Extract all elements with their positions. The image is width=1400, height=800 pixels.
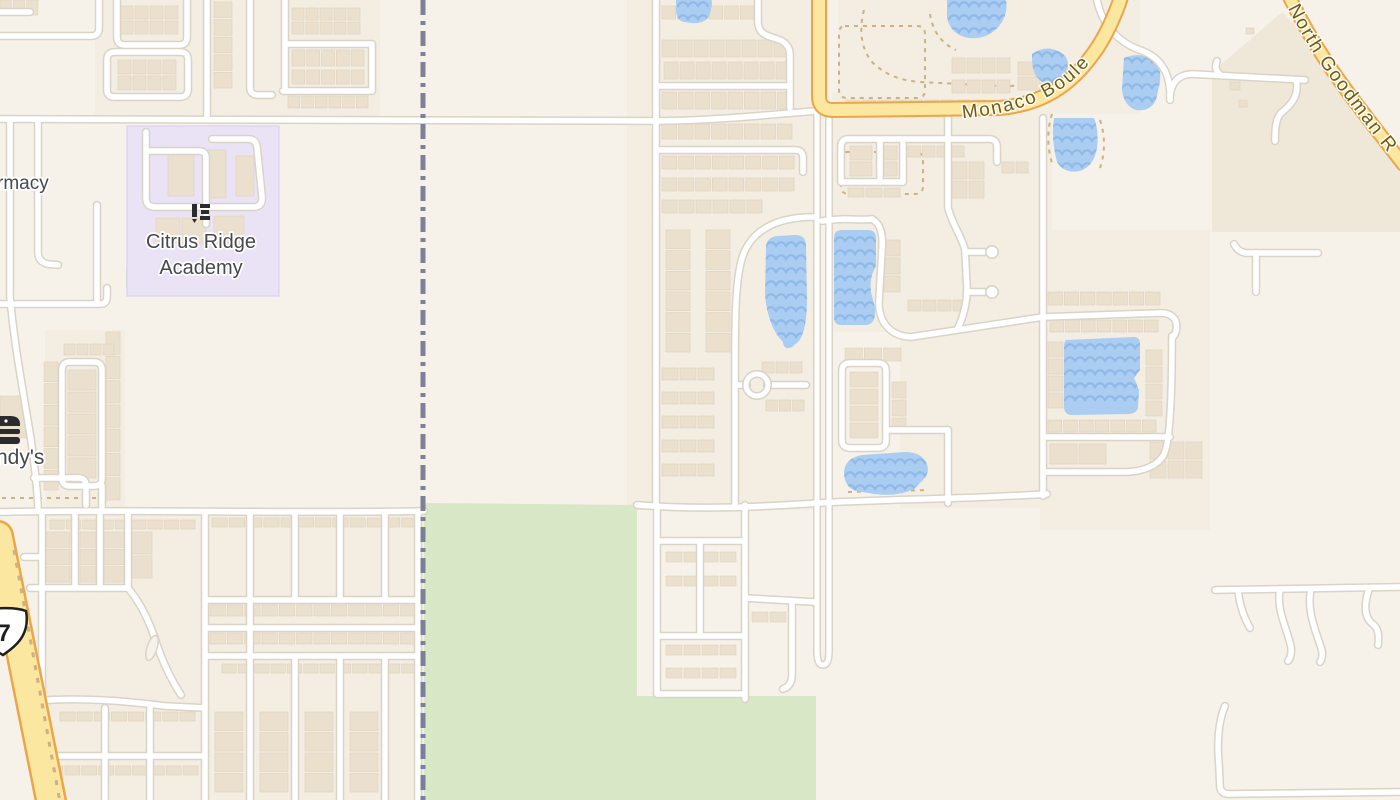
building-footprint [181,520,195,529]
building-footprint [166,766,181,775]
building-footprint [401,633,416,644]
building-footprint [729,156,744,169]
building-footprint [666,333,690,352]
building-footprint [68,370,96,390]
building-footprint [1048,292,1062,305]
building-footprint [132,520,146,529]
building-footprint [227,605,242,616]
building-footprint [64,344,75,355]
building-footprint [662,368,678,380]
building-footprint [666,230,690,249]
building-footprint [850,162,872,176]
building-footprint [383,605,398,616]
building-footprint [969,181,984,198]
building-footprint [746,156,761,169]
building-footprint [698,416,714,428]
building-footprint [367,518,382,527]
pharmacy-label-partial: rmacy [0,173,49,194]
building-footprint [120,21,133,34]
building-footprint [383,633,398,644]
building-footprint [215,753,243,772]
building-footprint [320,8,332,20]
building-footprint [44,384,58,404]
building-footprint [1168,461,1184,478]
building-footprint [215,712,243,731]
building-footprint [80,532,96,547]
building-footprint [967,80,980,93]
building-footprint [77,344,88,355]
building-footprint [884,162,897,176]
building-footprint [104,549,124,564]
building-footprint [1095,420,1109,432]
building-footprint [730,200,745,213]
building-footprint [1079,444,1106,464]
building-footprint [684,645,700,655]
building-footprint [351,50,364,66]
building-footprint [720,576,736,586]
building-footprint [168,152,194,196]
building-footprint [133,60,146,74]
building-footprint [1048,420,1062,432]
building-footprint [952,58,965,73]
building-footprint [892,382,906,398]
building-footprint [662,392,678,404]
building-footprint [349,633,364,644]
building-footprint [77,712,92,721]
building-footprint [210,605,225,616]
building-footprint [728,92,743,109]
building-footprint [322,70,335,84]
building-footprint [666,645,682,655]
building-footprint [46,549,70,564]
building-footprint [666,313,690,332]
building-footprint [698,464,714,476]
building-footprint [44,427,58,447]
building-footprint [132,766,147,775]
building-footprint [679,156,694,169]
building-footprint [133,76,146,90]
building-footprint [952,80,965,93]
building-footprint [712,124,727,139]
building-footprint [779,156,794,169]
building-footprint [111,712,126,721]
building-footprint [292,70,305,84]
building-footprint [80,567,96,582]
building-footprint [366,633,381,644]
building-footprint [350,712,378,731]
building-footprint [1113,320,1127,332]
building-footprint [698,368,714,380]
building-footprint [349,605,364,616]
building-footprint [298,518,313,527]
building-footprint [44,405,58,425]
building-footprint [712,178,727,191]
building-footprint [706,230,730,249]
building-footprint [726,40,740,57]
building-footprint [165,21,178,34]
building-footprint [662,92,677,109]
building-footprint [938,300,951,311]
building-footprint [118,60,131,74]
building-footprint [118,76,131,90]
building-footprint [680,440,696,452]
building-footprint [314,633,329,644]
building-footprint [106,356,120,378]
building-footprint [103,344,114,355]
building-footprint [1048,342,1063,357]
building-footprint [1146,401,1162,416]
building-footprint [292,50,305,66]
building-footprint [850,406,878,421]
building-footprint [1239,100,1247,107]
building-footprint [106,478,120,500]
building-footprint [164,520,178,529]
building-footprint [320,664,334,673]
building-footprint [297,605,312,616]
building-footprint [292,22,304,34]
building-footprint [304,664,318,673]
building-footprint [728,62,742,79]
building-footprint [997,58,1010,73]
building-footprint [884,276,900,292]
building-footprint [214,20,232,36]
building-footprint [695,124,710,139]
building-footprint [1079,420,1093,432]
building-footprint [752,612,768,622]
building-footprint [150,21,163,34]
building-footprint [65,766,80,775]
building-footprint [1230,82,1240,90]
building-footprint [776,362,788,373]
building-footprint [315,96,327,108]
building-footprint [952,162,967,179]
building-footprint [214,2,232,18]
building-footprint [320,22,332,34]
building-footprint [662,464,678,476]
building-footprint [1002,162,1014,173]
building-footprint [1246,28,1254,34]
building-footprint [666,668,682,678]
building-footprint [850,423,878,438]
building-footprint [684,668,700,678]
building-footprint [271,664,285,673]
building-footprint [982,58,995,73]
building-footprint [763,178,778,191]
building-footprint [793,400,804,411]
building-footprint [908,300,921,311]
building-footprint [720,668,736,678]
building-footprint [712,156,727,169]
building-footprint [1186,442,1202,459]
building-footprint [770,612,786,622]
building-footprint [116,766,131,775]
building-footprint [165,6,178,19]
building-footprint [334,22,346,34]
building-footprint [104,567,124,582]
building-footprint [694,40,708,57]
building-footprint [150,6,163,19]
building-footprint [222,664,236,673]
building-footprint [1064,420,1078,432]
building-footprint [1129,292,1143,305]
building-footprint [350,774,378,793]
building-footprint [779,400,790,411]
building-footprint [343,96,355,108]
building-footprint [662,200,677,213]
building-footprint [260,733,288,752]
building-footprint [848,188,864,197]
building-footprint [120,6,133,19]
building-footprint [331,633,346,644]
building-footprint [952,146,965,157]
building-footprint [46,532,70,547]
building-footprint [763,156,778,169]
building-footprint [1142,420,1156,432]
building-footprint [1081,292,1095,305]
building-footprint [1066,320,1080,332]
building-footprint [1111,420,1125,432]
building-footprint [260,712,288,731]
building-footprint [305,753,333,772]
building-footprint [712,92,727,109]
fast-food-icon [0,416,20,444]
building-footprint [262,633,277,644]
building-footprint [761,124,776,139]
building-footprint [712,62,726,79]
building-footprint [698,392,714,404]
building-footprint [1146,292,1160,305]
building-footprint [728,124,743,139]
building-footprint [790,362,802,373]
building-footprint [706,313,730,332]
building-footprint [746,178,761,191]
building-footprint [1186,461,1202,478]
building-footprint [1048,393,1063,408]
building-footprint [662,156,677,169]
building-footprint [1097,292,1111,305]
building-footprint [766,400,777,411]
building-footprint [46,567,70,582]
building-footprint [334,8,346,20]
building-footprint [322,50,335,66]
building-footprint [366,605,381,616]
building-footprint [706,292,730,311]
building-footprint [696,178,711,191]
building-footprint [662,440,678,452]
street-fill [1215,587,1400,590]
building-footprint [229,518,244,527]
building-footprint [696,200,711,213]
building-footprint [702,552,718,562]
building-footprint [106,381,120,403]
building-footprint [666,292,690,311]
building-footprint [148,520,162,529]
building-footprint [104,532,124,547]
building-footprint [350,733,378,752]
building-footprint [106,405,120,427]
building-footprint [163,60,176,74]
building-footprint [336,50,349,66]
building-footprint [742,40,756,57]
building-footprint [884,258,900,274]
building-footprint [262,605,277,616]
building-footprint [1050,444,1077,464]
street-fill [0,511,424,512]
building-footprint [850,146,872,160]
building-footprint [1146,367,1162,382]
building-footprint [50,520,64,529]
building-footprint [666,552,682,562]
building-footprint [316,518,331,527]
building-footprint [279,633,294,644]
building-footprint [982,80,995,93]
building-footprint [1129,320,1143,332]
building-footprint [329,96,341,108]
building-footprint [892,400,906,416]
building-footprint [148,60,161,74]
building-footprint [923,300,936,311]
building-footprint [702,576,718,586]
building-footprint [706,271,730,290]
building-footprint [696,156,711,169]
building-footprint [297,633,312,644]
building-footprint [745,92,760,109]
building-footprint [135,21,148,34]
building-footprint [183,766,198,775]
building-footprint [680,464,696,476]
building-footprint [678,40,692,57]
building-footprint [680,416,696,428]
building-footprint [1048,359,1063,374]
building-footprint [997,80,1010,93]
building-footprint [666,271,690,290]
building-footprint [44,449,58,469]
building-footprint [106,453,120,475]
building-footprint [745,124,760,139]
building-footprint [662,40,676,57]
building-footprint [923,146,936,157]
building-footprint [747,200,762,213]
building-footprint [236,156,254,196]
building-footprint [1146,384,1162,399]
building-footprint [288,96,300,108]
building-footprint [698,440,714,452]
building-footprint [90,344,101,355]
building-footprint [302,96,314,108]
building-footprint [215,774,243,793]
building-footprint [680,368,696,380]
building-footprint [83,520,97,529]
building-footprint [952,181,967,198]
building-footprint [106,429,120,451]
building-footprint [850,389,878,404]
building-footprint [348,8,360,20]
building-footprint [778,124,793,139]
building-footprint [1016,162,1028,173]
building-footprint [967,58,980,73]
building-footprint [664,62,678,79]
building-footprint [351,70,364,84]
building-footprint [662,6,676,19]
building-footprint [212,518,227,527]
building-footprint [1081,320,1095,332]
building-footprint [679,124,694,139]
building-footprint [135,6,148,19]
building-footprint [702,668,718,678]
building-footprint [68,436,96,456]
building-footprint [305,712,333,731]
building-footprint [210,633,225,644]
building-footprint [729,178,744,191]
building-footprint [227,633,242,644]
building-footprint [680,392,696,404]
building-footprint [82,766,97,775]
building-footprint [307,70,320,84]
building-footprint [884,348,901,361]
building-footprint [306,22,318,34]
building-footprint [1050,320,1064,332]
route-number: 7 [0,620,11,647]
building-footprint [80,549,96,564]
building-footprint [148,76,161,90]
building-footprint [1146,350,1162,365]
building-footprint [725,6,739,19]
building-footprint [214,55,232,71]
building-footprint [884,146,897,160]
building-footprint [180,712,195,721]
building-footprint [662,178,677,191]
building-footprint [260,774,288,793]
building-footprint [1144,320,1158,332]
building-footprint [758,40,772,57]
building-footprint [348,22,360,34]
building-footprint [350,518,365,527]
building-footprint [306,8,318,20]
building-footprint [866,188,882,197]
building-footprint [720,645,736,655]
building-footprint [695,92,710,109]
building-footprint [292,8,304,20]
building-footprint [696,62,710,79]
building-footprint [307,50,320,66]
building-footprint [401,605,416,616]
building-footprint [720,552,736,562]
building-footprint [702,645,718,655]
building-footprint [884,188,900,197]
building-footprint [850,372,878,387]
building-footprint [68,414,96,434]
building-footprint [356,96,368,108]
building-footprint [740,6,754,19]
map-canvas[interactable]: Monaco BouleNorth Goodman RCitrus RidgeA… [0,0,1400,800]
building-footprint [214,37,232,53]
building-footprint [761,92,776,109]
building-footprint [679,92,694,109]
building-footprint [713,200,728,213]
building-footprint [1113,292,1127,305]
map-viewport[interactable]: Monaco BouleNorth Goodman RCitrus RidgeA… [0,0,1400,800]
building-footprint [666,576,682,586]
school-name-line2: Academy [159,257,242,279]
building-footprint [68,392,96,412]
building-footprint [44,362,58,382]
building-footprint [710,40,724,57]
building-footprint [680,62,694,79]
building-footprint [969,162,984,179]
building-footprint [279,605,294,616]
building-footprint [1097,320,1111,332]
building-footprint [215,733,243,752]
